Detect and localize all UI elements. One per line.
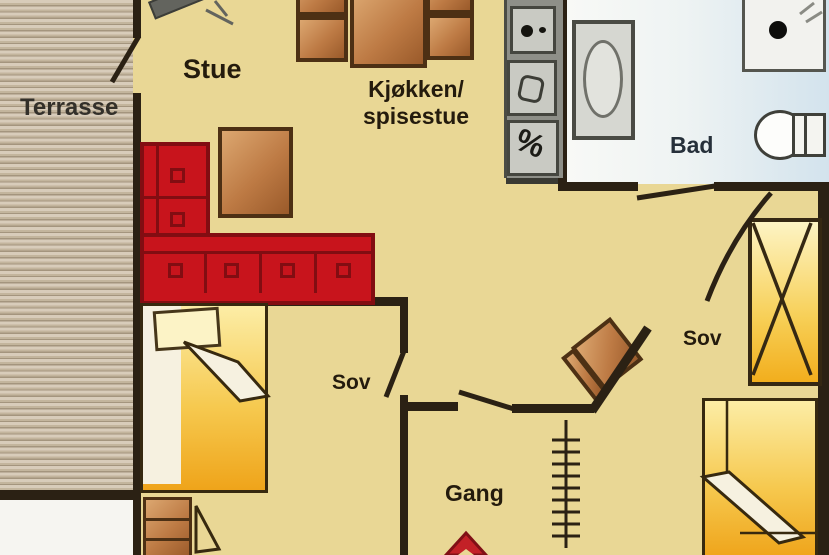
terrace-deck — [0, 0, 133, 498]
dishwasher-icon: % — [507, 120, 559, 176]
sov-left-door-leaf — [386, 351, 404, 397]
dining-chair — [426, 14, 474, 60]
cooktop-icon — [510, 6, 556, 54]
coffee-table — [218, 127, 293, 218]
sofa-backrest-line — [144, 251, 371, 254]
floor-plan: % — [0, 0, 829, 555]
sov-left-door-jamb — [400, 297, 408, 353]
cooktop-burner-dot-small — [539, 27, 546, 33]
sofa-cushion-divider — [204, 251, 207, 293]
sofa-cushion-divider — [314, 251, 317, 293]
sofa-button — [170, 168, 185, 183]
sofa-button — [224, 263, 239, 278]
sofa-cushion-divider — [259, 251, 262, 293]
bed-right — [702, 398, 818, 555]
gang-top-wall-a — [402, 402, 458, 411]
room-label-bad: Bad — [670, 132, 713, 159]
sink-basin — [517, 74, 546, 104]
dining-table — [350, 0, 427, 68]
dining-chair — [296, 16, 348, 62]
bath-door-leaf — [637, 186, 715, 198]
washbasin-icon — [742, 0, 826, 72]
terrace-bottom-wall — [0, 490, 141, 500]
toilet-tank — [792, 113, 826, 157]
sofa-button — [336, 263, 351, 278]
sofa-cushion-divider — [144, 196, 206, 199]
entrance-arrow-icon — [446, 533, 486, 555]
room-label-kjokken-line2: spisestue — [330, 103, 502, 130]
washbasin-drain-dot — [769, 21, 787, 39]
sofa-button — [168, 263, 183, 278]
room-label-sov-right: Sov — [683, 327, 722, 351]
room-label-terrasse: Terrasse — [20, 94, 118, 122]
room-label-sov-left: Sov — [332, 371, 371, 395]
room-label-stue: Stue — [183, 54, 242, 85]
toilet-tank-divider — [804, 116, 807, 154]
bath-bottom-wall-b — [714, 182, 829, 191]
desk-chair-icon — [196, 506, 219, 552]
bed-pillow — [153, 307, 222, 352]
sofa-button — [280, 263, 295, 278]
sofa-horizontal-section — [140, 233, 375, 305]
room-label-kjokken: Kjøkken/ spisestue — [330, 76, 502, 130]
loft-ladder-icon — [552, 420, 580, 548]
wardrobe-icon — [748, 218, 822, 386]
desk-drawer-line — [146, 518, 189, 521]
wood-stove-icon — [148, 0, 218, 20]
dishwasher-symbol: % — [510, 121, 550, 166]
sofa-button — [170, 212, 185, 227]
gang-door-leaf — [459, 392, 514, 409]
room-label-kjokken-line1: Kjøkken/ — [330, 76, 502, 103]
bedroom-chair — [559, 310, 654, 403]
bathtub-basin — [583, 40, 623, 118]
gang-top-wall-b — [512, 404, 594, 413]
terrace-wall-upper — [133, 0, 141, 38]
outside-ground — [0, 498, 133, 555]
gang-left-wall — [400, 395, 408, 555]
dining-chair — [426, 0, 474, 14]
kitchen-sink-icon — [507, 60, 557, 116]
dining-chair — [296, 0, 348, 16]
bath-bottom-wall-a — [558, 182, 638, 191]
bathtub-icon — [572, 20, 635, 140]
desk — [143, 497, 192, 555]
desk-drawer-line — [146, 538, 189, 541]
cooktop-burner-dot — [521, 25, 533, 37]
room-label-gang: Gang — [445, 480, 504, 507]
stove-flue-lines — [206, 1, 233, 24]
